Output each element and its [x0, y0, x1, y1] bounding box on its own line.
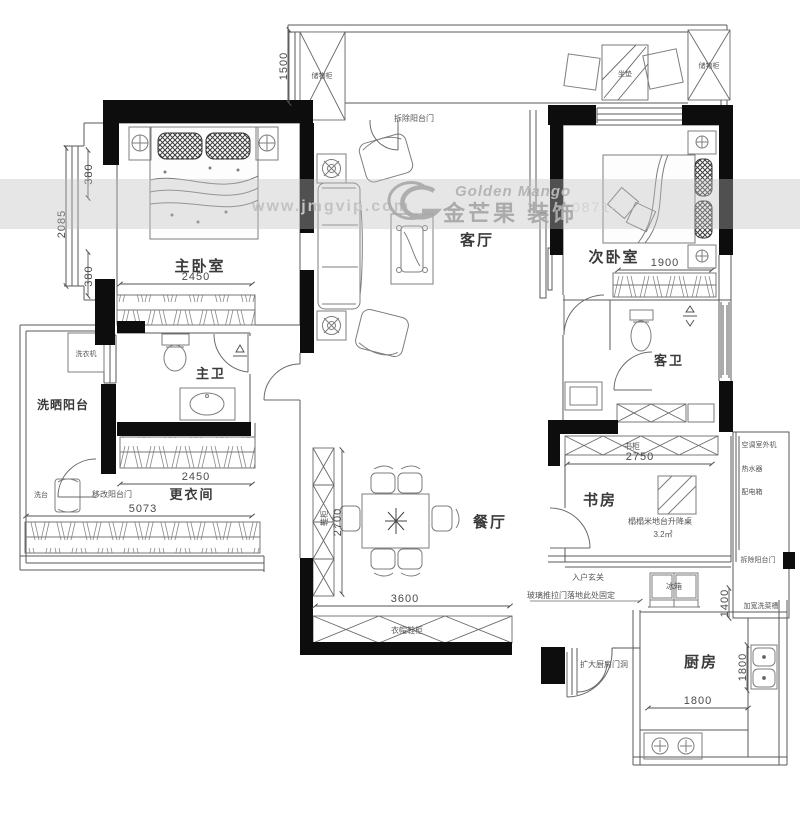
- note-tatami-area: 3.2㎡: [653, 530, 672, 539]
- guest-bath-door: [614, 352, 652, 390]
- note-ac-outdoor: 空调室外机: [742, 440, 777, 449]
- note-modify-balcony-door: 移改阳台门: [92, 489, 132, 499]
- study-door: [550, 508, 590, 548]
- second-nightstand-top: [688, 131, 716, 154]
- room-label-second-bedroom: 次卧室: [588, 248, 639, 266]
- note-wash-stand: 洗台: [34, 490, 48, 499]
- speaker-bottom: [317, 311, 346, 340]
- note-widen-sink: 加宽洗菜槽: [744, 601, 779, 610]
- master-nightstand-right: [256, 127, 278, 160]
- note-remove-balcony-door-top: 拆除阳台门: [394, 113, 434, 123]
- armchair-top: [357, 132, 414, 184]
- note-tatami-desk: 榻榻米地台升降桌: [628, 516, 692, 526]
- master-vanity: [180, 388, 235, 420]
- dim-2700: 2700: [332, 508, 344, 536]
- second-bedroom-closet: [613, 273, 716, 297]
- master-nightstand-left: [129, 127, 151, 160]
- note-shoe-cabinet: 鞋柜: [319, 510, 329, 526]
- dim-380-bottom: 380: [83, 265, 95, 286]
- entry-door: [567, 652, 612, 697]
- note-coat-shoe-cabinet: 衣帽鞋柜: [391, 625, 423, 635]
- note-storage-right: 储物柜: [699, 61, 720, 70]
- note-entry-foyer: 入户玄关: [572, 572, 604, 582]
- guest-bath-vanity: [617, 404, 714, 422]
- guest-basin: [565, 382, 602, 410]
- room-label-guest-bath: 客卫: [654, 353, 684, 368]
- note-glass-door: 玻璃推拉门落地此处固定: [527, 590, 615, 600]
- room-label-living-room: 客厅: [459, 231, 494, 249]
- dimensions: 1500 380 2085 380 2450 2450 5073 2700 36…: [26, 30, 749, 708]
- kitchen-sink: [751, 645, 777, 689]
- watermark-phone: 0871-: [572, 199, 618, 215]
- watermark-brand-cn: 金芒果 装饰: [442, 201, 577, 226]
- dim-1900: 1900: [651, 257, 679, 269]
- cabinets: [300, 30, 730, 643]
- master-closet: [117, 295, 255, 325]
- guest-toilet: [630, 310, 653, 351]
- room-label-master-bedroom: 主卧室: [174, 257, 225, 275]
- room-label-kitchen: 厨房: [684, 653, 718, 671]
- dim-2450-dressing: 2450: [182, 471, 210, 483]
- dim-2750: 2750: [626, 451, 654, 463]
- floor-drain: [233, 345, 247, 356]
- dressing-closet-top: [120, 437, 255, 468]
- speaker-top: [317, 154, 346, 183]
- note-enlarge-kitchen-door: 扩大厨房门洞: [580, 659, 628, 669]
- second-nightstand-bottom: [688, 245, 716, 268]
- note-fridge: 冰箱: [666, 581, 682, 591]
- floor-plan-drawing: 1500 380 2085 380 2450 2450 5073 2700 36…: [0, 0, 800, 837]
- room-label-study: 书房: [583, 491, 617, 509]
- dressing-closet-long: [25, 522, 260, 553]
- armchair-bottom: [354, 308, 410, 359]
- dim-1400: 1400: [719, 589, 731, 617]
- room-label-master-bath: 主卫: [196, 366, 226, 381]
- room-label-dressing-room: 更衣间: [169, 487, 214, 502]
- dim-1800-sink: 1800: [737, 653, 749, 681]
- room-label-dining-room: 餐厅: [473, 513, 507, 531]
- dim-1800-kitchen: 1800: [684, 695, 712, 707]
- dining-table: [333, 466, 459, 576]
- second-bedroom-door: [564, 295, 604, 335]
- dim-3600: 3600: [391, 593, 419, 605]
- guest-shower-symbol: [683, 306, 697, 326]
- laundry-door: [58, 459, 96, 497]
- laundry-stool: [55, 479, 80, 512]
- room-label-laundry-balcony: 洗晒阳台: [37, 397, 89, 412]
- note-remove-balcony-door-right: 拆除阳台门: [741, 555, 776, 564]
- master-corridor-door: [264, 364, 300, 400]
- note-bookcase: 书柜: [624, 441, 640, 451]
- tatami-desk: [658, 476, 696, 514]
- note-washing-machine: 洗衣机: [76, 349, 97, 358]
- note-distribution-box: 配电箱: [742, 487, 763, 496]
- floor-plan-sheet: 1500 380 2085 380 2450 2450 5073 2700 36…: [0, 0, 800, 837]
- watermark: www.jmgvip.com Golden Mango 金芒果 装饰 0871-: [0, 179, 800, 229]
- dim-1500: 1500: [278, 52, 290, 80]
- watermark-brand-en: Golden Mango: [455, 183, 571, 200]
- watermark-url: www.jmgvip.com: [251, 198, 410, 215]
- stove: [644, 733, 702, 759]
- note-storage-left: 储物柜: [312, 71, 333, 80]
- note-cushion: 坐垫: [618, 69, 632, 78]
- dim-5073: 5073: [129, 503, 157, 515]
- master-toilet: [162, 334, 189, 371]
- note-water-heater: 热水器: [742, 464, 763, 473]
